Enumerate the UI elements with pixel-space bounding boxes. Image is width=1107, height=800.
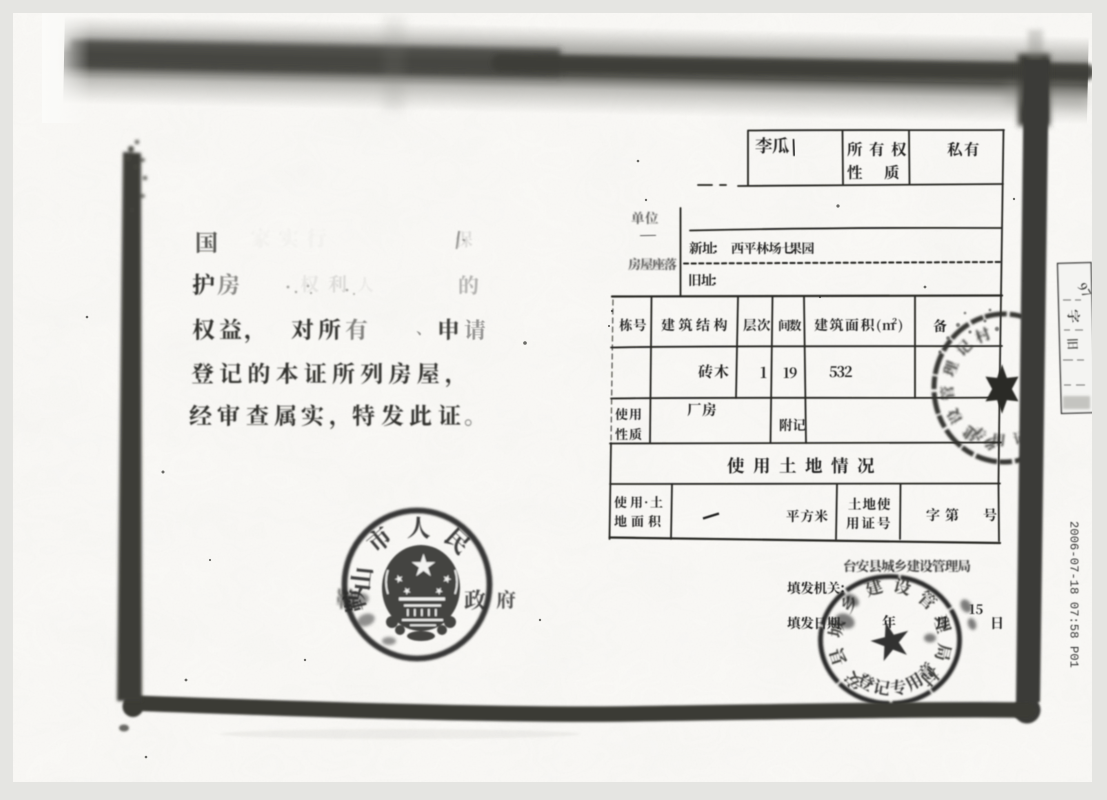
svg-text:2006-07-18 07:58 P01: 2006-07-18 07:58 P01: [1067, 521, 1081, 668]
